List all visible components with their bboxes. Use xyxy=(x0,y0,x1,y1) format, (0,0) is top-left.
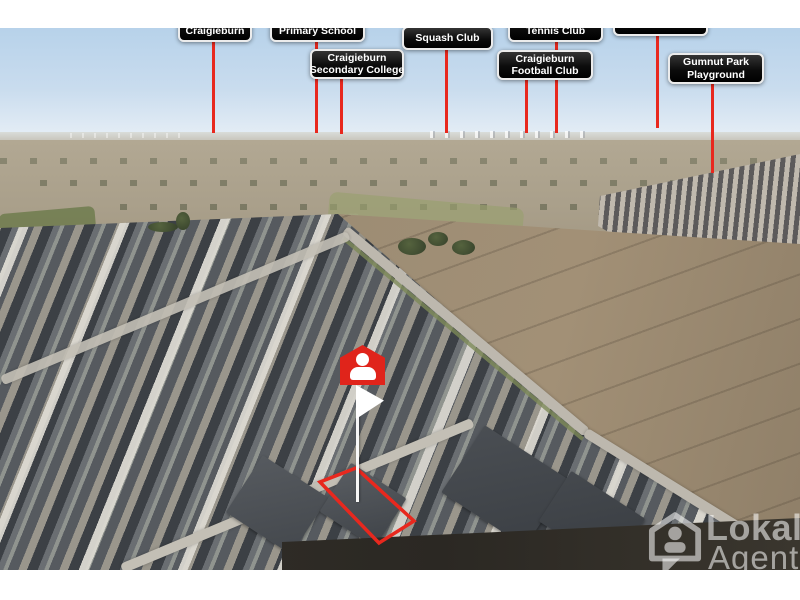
map-label-tennis-club: Tennis Club xyxy=(508,28,603,42)
brand-line2: Agent xyxy=(708,543,800,570)
person-icon-body xyxy=(350,367,376,380)
callout-line-gumnut-park xyxy=(711,83,714,173)
map-label-primary-school: Primary School xyxy=(270,28,365,42)
map-label-football-club: CraigieburnFootball Club xyxy=(497,50,593,80)
map-label-squash-club: Squash Club xyxy=(402,28,493,50)
callout-line-secondary-college xyxy=(340,77,343,134)
brand-watermark: Lokal Agent xyxy=(648,512,800,570)
map-label-text: Craigieburn xyxy=(186,28,245,37)
real-estate-aerial-flyer: { "photo": { "description": "Aerial dron… xyxy=(0,0,800,600)
lokal-house-icon xyxy=(648,512,702,570)
amenity-callouts-layer: CraigieburnPrimary SchoolCraigieburnSeco… xyxy=(0,28,800,570)
aerial-photo: CraigieburnPrimary SchoolCraigieburnSeco… xyxy=(0,28,800,570)
map-label-unlabeled xyxy=(613,28,708,36)
map-label-secondary-college: CraigieburnSecondary College xyxy=(310,49,404,79)
callout-line-unlabeled xyxy=(656,36,659,128)
map-label-text: Craigieburn xyxy=(516,53,575,66)
map-label-text: Playground xyxy=(687,69,745,82)
callout-line-craigieburn xyxy=(212,40,215,133)
map-label-gumnut-park: Gumnut ParkPlayground xyxy=(668,53,764,84)
map-label-text: Tennis Club xyxy=(526,28,585,37)
map-label-text: Gumnut Park xyxy=(683,56,749,69)
map-label-text: Primary School xyxy=(279,28,356,37)
map-label-text: Craigieburn xyxy=(328,52,387,65)
map-label-craigieburn: Craigieburn xyxy=(178,28,252,42)
callout-line-football-club xyxy=(525,79,528,133)
person-icon xyxy=(356,353,369,366)
map-label-text: Squash Club xyxy=(415,32,479,45)
callout-line-squash-club xyxy=(445,48,448,133)
map-label-text: Secondary College xyxy=(310,64,405,77)
map-label-text: Football Club xyxy=(511,65,578,78)
brand-name: Lokal Agent xyxy=(706,512,800,570)
